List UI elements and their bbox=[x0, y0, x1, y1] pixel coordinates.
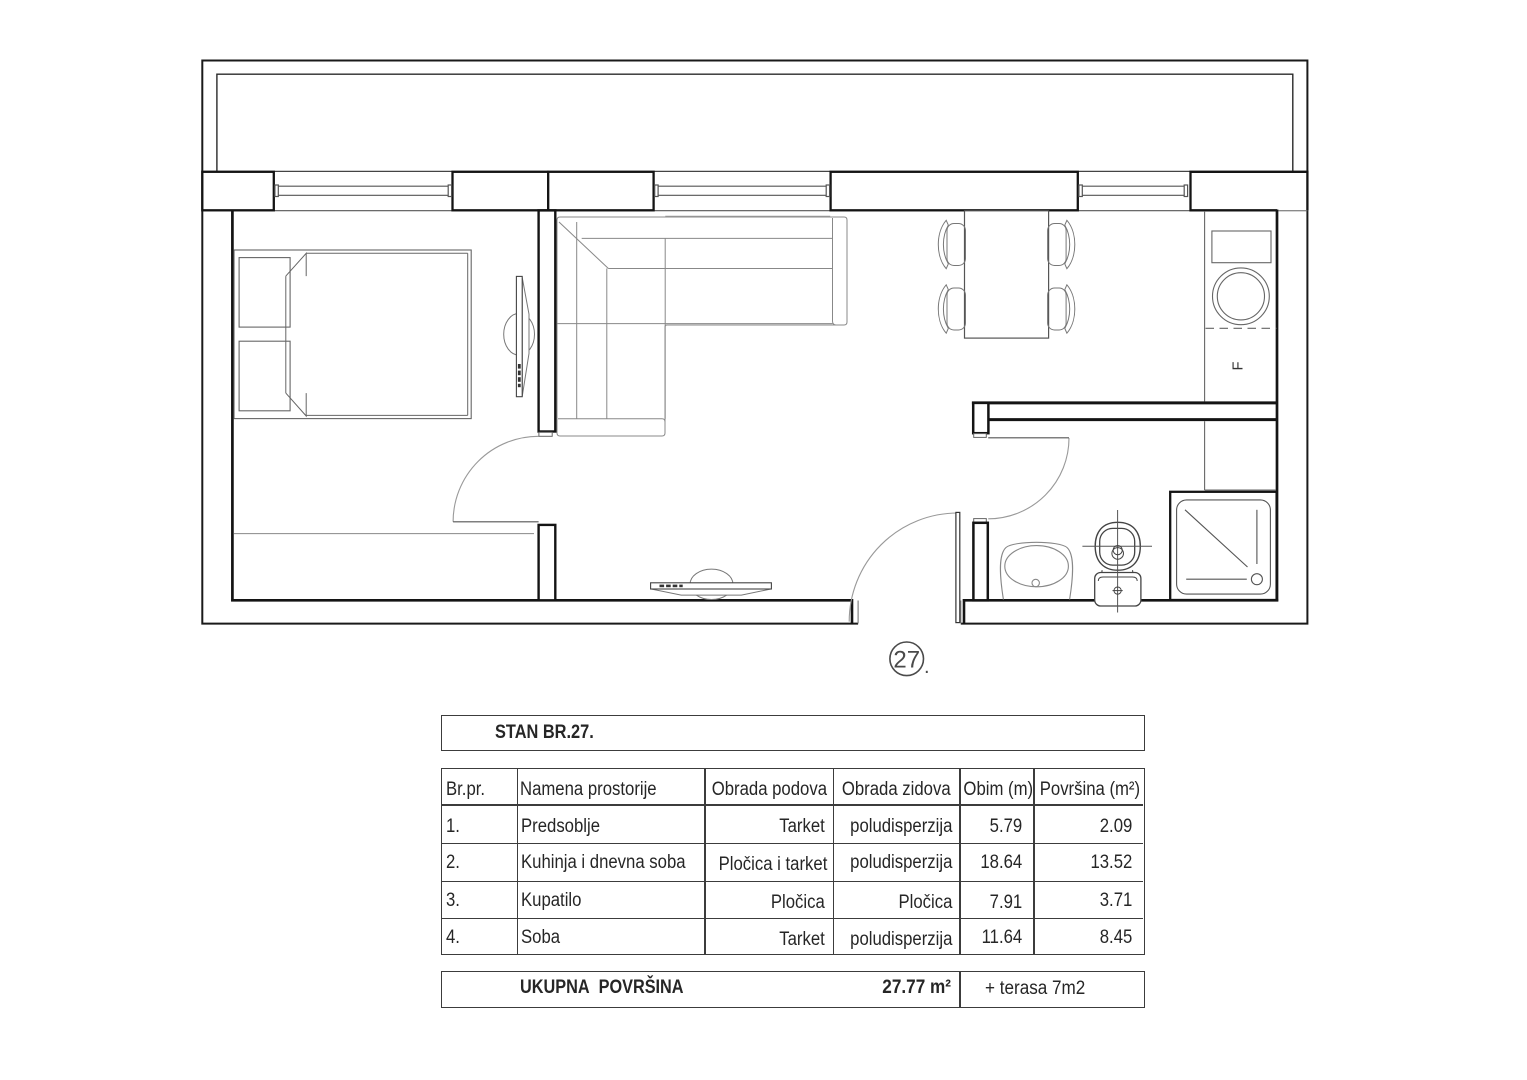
svg-text:F: F bbox=[1231, 361, 1247, 370]
svg-text:27: 27 bbox=[893, 647, 920, 674]
svg-text:.: . bbox=[924, 656, 930, 678]
